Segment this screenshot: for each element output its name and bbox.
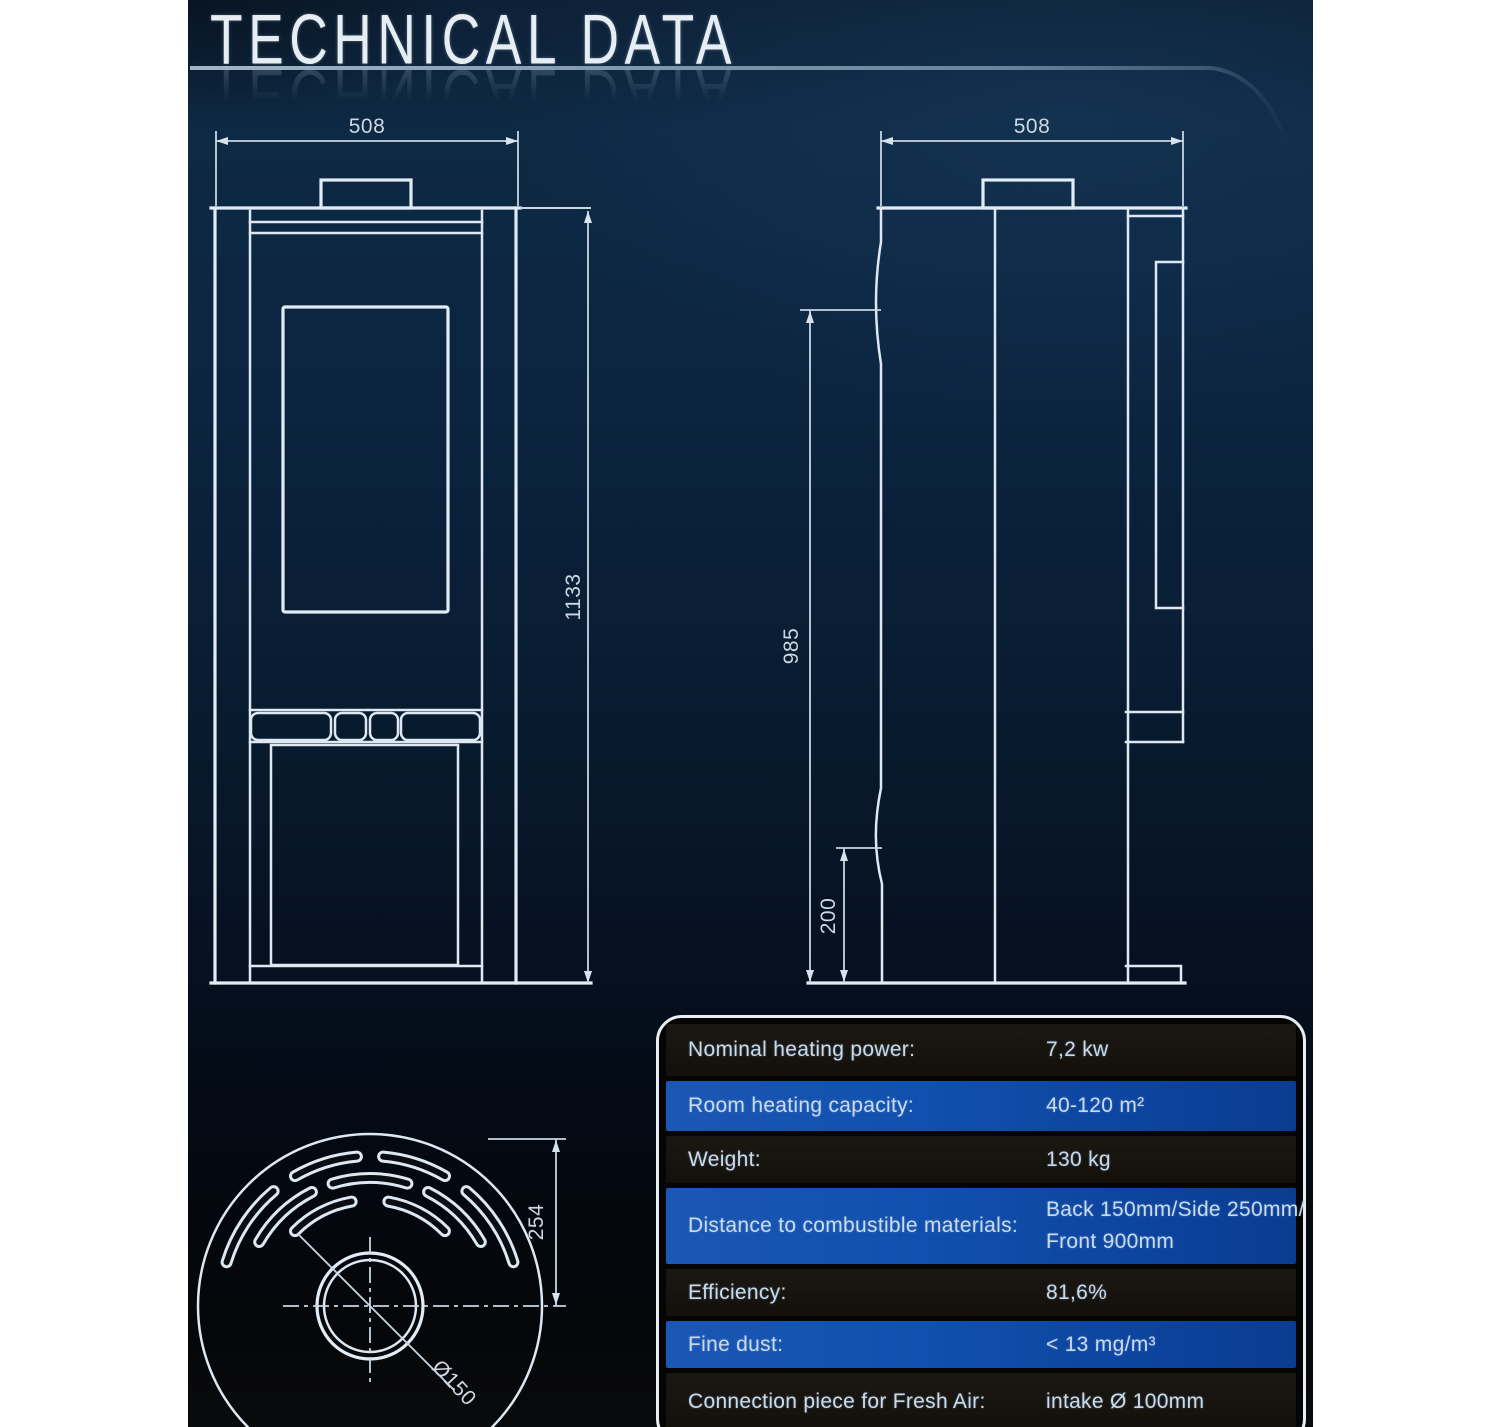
spec-row-distance-to-combustibles: Distance to combustible materials: Back …	[666, 1188, 1296, 1264]
spec-value: 40-120 m²	[1046, 1094, 1144, 1118]
spec-label: Fine dust:	[688, 1333, 783, 1357]
front-view-drawing: 508 1133	[211, 115, 592, 983]
spec-label: Nominal heating power:	[688, 1038, 915, 1062]
spec-table: Nominal heating power: 7,2 kw Room heati…	[656, 1015, 1306, 1427]
spec-value: 7,2 kw	[1046, 1038, 1109, 1062]
dimension-front-width: 508	[349, 115, 386, 138]
arrowhead	[840, 970, 848, 982]
spec-value: Back 150mm/Side 250mm/ Front 900mm	[1046, 1194, 1305, 1258]
spec-label: Distance to combustible materials:	[688, 1214, 1018, 1238]
vent-slot	[401, 713, 480, 740]
spec-value: intake Ø 100mm	[1046, 1390, 1204, 1414]
vent-slot	[251, 713, 331, 740]
vent-slot	[335, 713, 366, 740]
spec-row-efficiency: Efficiency: 81,6%	[666, 1269, 1296, 1316]
arrowhead	[806, 311, 814, 323]
handle-band	[1126, 712, 1183, 742]
spec-label: Connection piece for Fresh Air:	[688, 1390, 986, 1414]
arrowhead	[881, 137, 893, 145]
spec-row-fresh-air-connection: Connection piece for Fresh Air: intake Ø…	[666, 1373, 1296, 1427]
dimension-flue-diameter: Ø150	[427, 1356, 480, 1411]
door-glass-window	[283, 307, 448, 612]
dimension-side-base-height: 200	[817, 898, 840, 935]
flue-collar	[983, 180, 1073, 208]
spec-value-line2: Front 900mm	[1046, 1226, 1305, 1258]
arrowhead	[506, 137, 518, 145]
arrowhead	[1171, 137, 1183, 145]
arrowhead	[216, 137, 228, 145]
vent-slot	[370, 713, 398, 740]
side-glass-panel	[1156, 262, 1183, 608]
log-store-door	[271, 745, 458, 965]
spec-value-line1: Back 150mm/Side 250mm/	[1046, 1194, 1305, 1226]
arrowhead	[806, 970, 814, 982]
spec-row-nominal-heating-power: Nominal heating power: 7,2 kw	[666, 1024, 1296, 1076]
spec-row-room-heating-capacity: Room heating capacity: 40-120 m²	[666, 1081, 1296, 1131]
top-view-drawing: Ø150 254	[198, 1134, 566, 1427]
arrowhead	[584, 971, 592, 983]
rear-foot	[1126, 966, 1181, 983]
dim-extension-lines	[881, 131, 1183, 206]
dimension-side-depth: 508	[1014, 115, 1051, 138]
spec-row-fine-dust: Fine dust: < 13 mg/m³	[666, 1321, 1296, 1368]
spec-label: Weight:	[688, 1148, 761, 1172]
datasheet-page: { "page": { "title": "TECHNICAL DATA" },…	[0, 0, 1500, 1427]
flue-collar	[321, 180, 411, 208]
spec-label: Efficiency:	[688, 1281, 787, 1305]
front-curved-edge	[876, 208, 882, 983]
arrowhead	[584, 211, 592, 223]
flue-diameter-leader	[298, 1234, 454, 1390]
spec-value: < 13 mg/m³	[1046, 1333, 1156, 1357]
arrowhead	[552, 1140, 560, 1152]
top-trim-lines	[250, 222, 482, 233]
dimension-front-height: 1133	[562, 573, 585, 620]
spec-value: 81,6%	[1046, 1281, 1107, 1305]
dimension-side-body-height: 985	[780, 628, 803, 665]
arrowhead	[840, 849, 848, 861]
spec-label: Room heating capacity:	[688, 1094, 914, 1118]
spec-row-weight: Weight: 130 kg	[666, 1136, 1296, 1183]
dimension-top-radius: 254	[525, 1204, 548, 1241]
arrowhead	[552, 1293, 560, 1305]
spec-value: 130 kg	[1046, 1148, 1111, 1172]
side-view-drawing: 508 985 200	[780, 115, 1186, 983]
datasheet-panel: TECHNICAL DATA TECHNICAL DATA 508	[188, 0, 1313, 1427]
body-outer-edges	[215, 208, 516, 983]
dim-extension-lines	[216, 131, 518, 206]
